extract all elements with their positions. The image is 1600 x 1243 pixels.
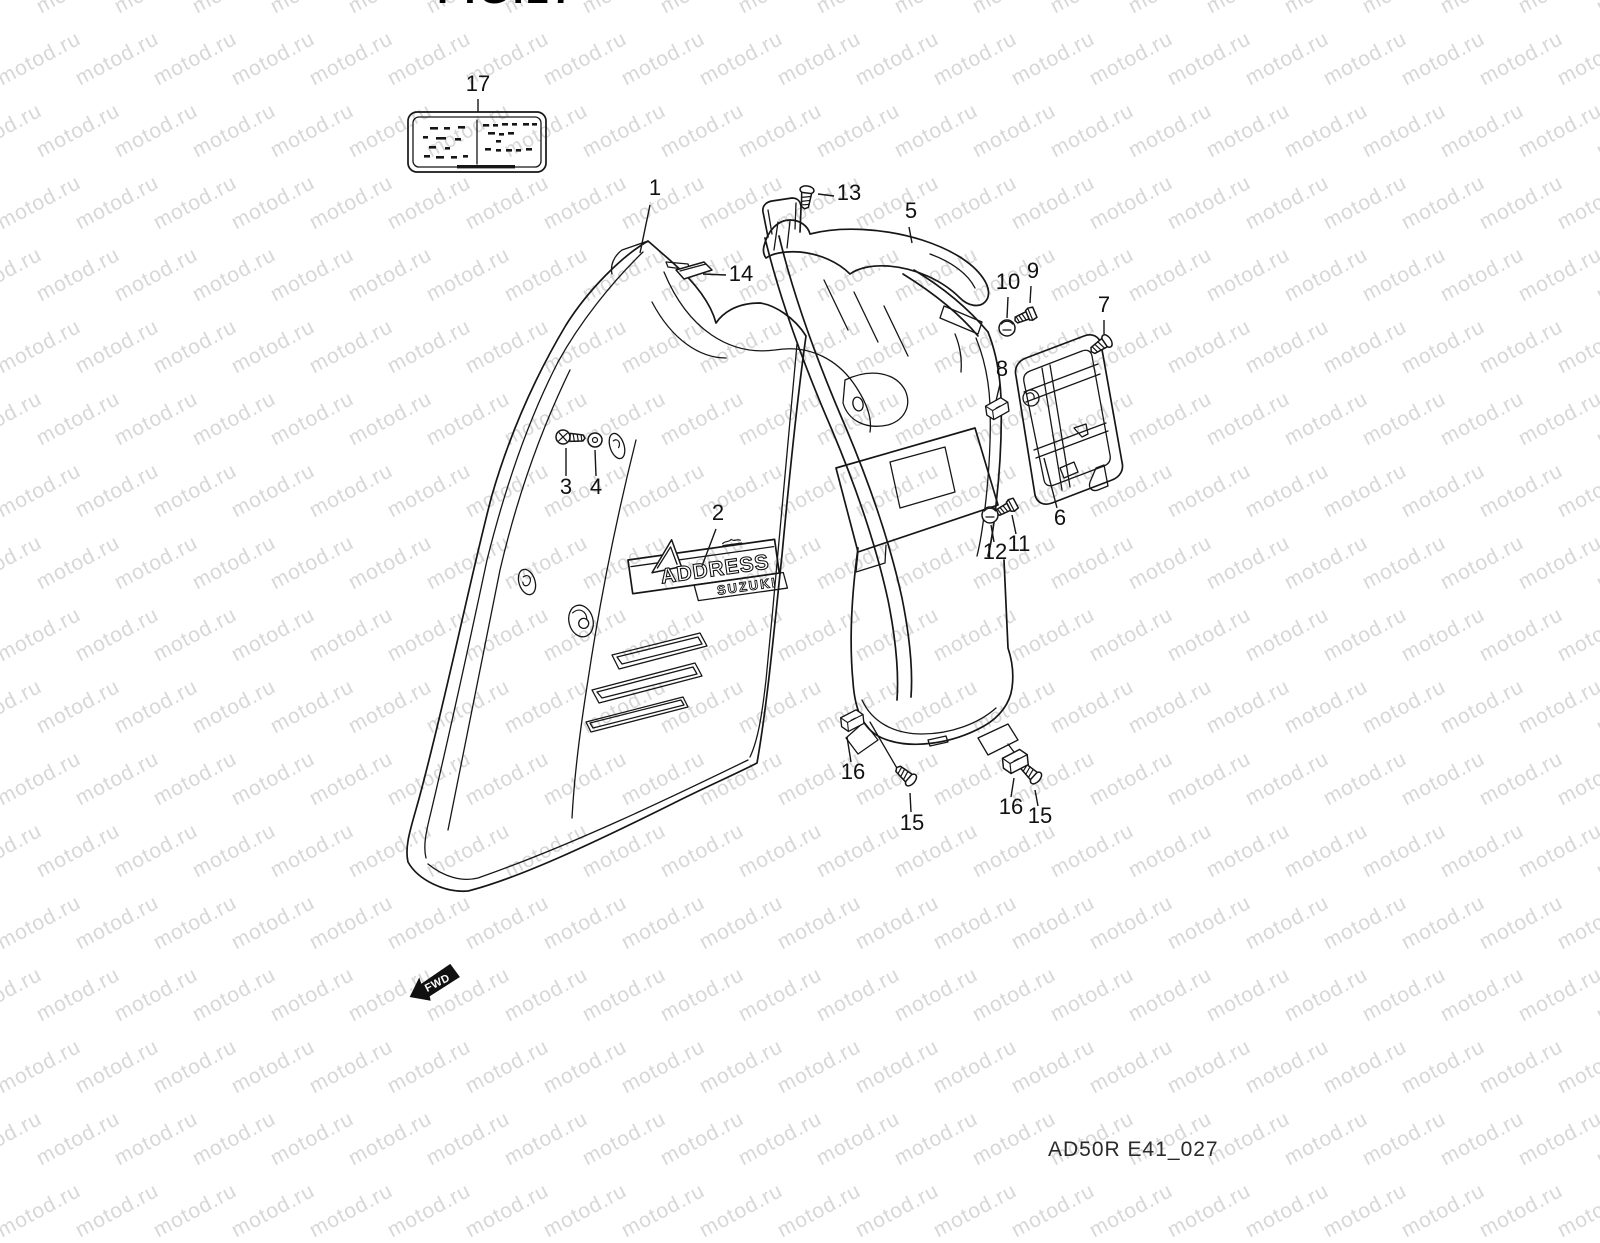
- callout-leader-5: [909, 227, 912, 243]
- part-8-clip: [985, 397, 1010, 421]
- callout-leader-4: [595, 450, 596, 476]
- oval-hole: [606, 431, 627, 460]
- callouts-layer: 11351410978342612111615161517: [466, 71, 1110, 835]
- part-16-clip-left: [840, 709, 865, 732]
- callout-1: 1: [649, 175, 661, 200]
- callout-leader-10: [1007, 297, 1008, 318]
- callout-17: 17: [466, 71, 490, 96]
- parts-diagram: ADDRESS SUZUKI: [0, 0, 1600, 1200]
- callout-leader-6: [1044, 458, 1057, 508]
- grommet-hole: [565, 602, 596, 639]
- callout-15: 15: [900, 810, 924, 835]
- callout-10: 10: [996, 269, 1020, 294]
- part-14-tab: [676, 262, 712, 279]
- callout-14: 14: [729, 261, 753, 286]
- callout-16: 16: [999, 794, 1023, 819]
- callout-15: 15: [1028, 803, 1052, 828]
- callout-5: 5: [905, 198, 917, 223]
- fwd-marker: FWD: [405, 962, 463, 1007]
- callout-12: 12: [983, 539, 1007, 564]
- callout-3: 3: [560, 474, 572, 499]
- callout-9: 9: [1027, 258, 1039, 283]
- callout-4: 4: [590, 474, 602, 499]
- frame-cover-center: [763, 198, 1018, 770]
- callout-7: 7: [1098, 292, 1110, 317]
- callout-2: 2: [712, 500, 724, 525]
- grommet-hole: [515, 567, 538, 597]
- clipped-figure-title: FIG.27: [437, 0, 577, 13]
- part-4-washer: [588, 433, 602, 447]
- callout-13: 13: [837, 180, 861, 205]
- callout-6: 6: [1054, 505, 1066, 530]
- plate-print-marks: [423, 123, 537, 168]
- part-12-screw: [982, 507, 998, 523]
- callout-8: 8: [996, 356, 1008, 381]
- part-2-address-decal: ADDRESS SUZUKI: [626, 525, 787, 610]
- part-17-label-plate: [408, 112, 546, 172]
- callout-leader-13: [818, 194, 834, 196]
- callout-leader-14: [703, 274, 726, 275]
- part-6-lid-frame: [1015, 335, 1122, 504]
- callout-16: 16: [841, 759, 865, 784]
- callout-11: 11: [1008, 531, 1031, 556]
- part-9-bolt: [1013, 306, 1038, 326]
- figure-code: AD50R E41_027: [1048, 1138, 1219, 1162]
- part-5-upper-cover: [763, 220, 988, 305]
- vent-slots: [586, 633, 707, 732]
- callout-leader-1: [640, 205, 650, 253]
- callout-leader-9: [1030, 286, 1031, 303]
- part-10-screw: [999, 320, 1015, 336]
- part-3-screw: [556, 430, 586, 445]
